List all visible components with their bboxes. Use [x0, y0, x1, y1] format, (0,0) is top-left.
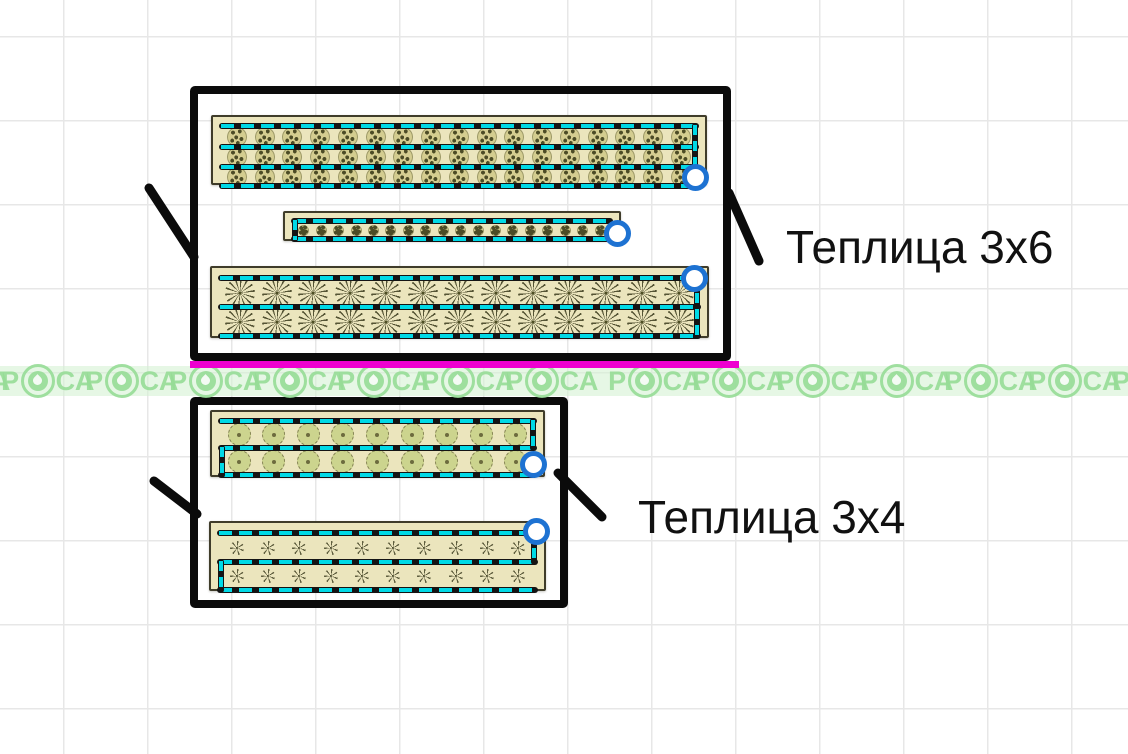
watermark-logo-unit: РСА	[6, 364, 90, 398]
drip-irrigation-line	[219, 144, 699, 150]
plant-symbol	[403, 225, 414, 236]
water-drop-logo-inner	[196, 371, 216, 391]
water-drop-logo-icon	[628, 364, 662, 398]
water-drop-icon	[199, 374, 212, 387]
plant-symbol	[366, 450, 389, 473]
drip-irrigation-line	[218, 304, 701, 310]
plant-symbol	[560, 225, 571, 236]
watermark-letter-r: Р	[169, 366, 188, 397]
water-drop-logo-inner	[112, 371, 132, 391]
watermark-logo-unit: РСА	[510, 364, 594, 398]
drip-line-handle[interactable]	[604, 220, 631, 247]
plant-symbol	[435, 450, 458, 473]
watermark-logo-unit: РСА	[1033, 364, 1117, 398]
drip-line-handle[interactable]	[523, 518, 550, 545]
plant-symbol	[355, 541, 369, 555]
drip-irrigation-line	[217, 530, 538, 536]
water-drop-icon	[974, 374, 987, 387]
water-drop-icon	[1058, 374, 1071, 387]
plant-symbol	[518, 307, 548, 337]
watermark-logo-unit: РСА	[426, 364, 510, 398]
watermark-logo-unit: РСА	[342, 364, 426, 398]
garden-bed[interactable]	[210, 410, 545, 477]
drip-irrigation-line	[217, 559, 538, 565]
plant-row	[295, 225, 609, 236]
plant-symbol	[324, 541, 338, 555]
water-drop-logo-inner	[887, 371, 907, 391]
watermark-strip: РСАРСАРСАРСАРСАРСАРСА	[613, 364, 1128, 398]
watermark-letter-r: Р	[776, 366, 795, 397]
water-drop-logo-inner	[1055, 371, 1075, 391]
watermark-letter-r: Р	[337, 366, 356, 397]
drip-irrigation-connector	[530, 418, 536, 451]
plant-symbol	[335, 307, 365, 337]
plant-symbol	[480, 569, 494, 583]
plant-symbol	[591, 278, 621, 308]
water-drop-icon	[535, 374, 548, 387]
watermark-logo-unit: РСА	[613, 364, 697, 398]
plant-symbol	[577, 225, 588, 236]
water-drop-logo-icon	[525, 364, 559, 398]
water-drop-icon	[806, 374, 819, 387]
plant-symbol	[420, 225, 431, 236]
plant-symbol	[481, 307, 511, 337]
plant-symbol	[225, 278, 255, 308]
watermark-letter-r: Р	[860, 366, 879, 397]
drip-irrigation-line	[291, 236, 613, 242]
water-drop-logo-inner	[803, 371, 823, 391]
water-drop-icon	[638, 374, 651, 387]
water-drop-logo-icon	[796, 364, 830, 398]
plant-row	[221, 541, 534, 555]
watermark-logo-unit: РСА	[697, 364, 781, 398]
plant-symbol	[435, 423, 458, 446]
plant-symbol	[262, 450, 285, 473]
drip-irrigation-connector	[218, 559, 224, 593]
drip-irrigation-line	[291, 218, 613, 224]
plant-symbol	[511, 541, 525, 555]
plant-symbol	[408, 307, 438, 337]
drip-line-handle[interactable]	[520, 451, 547, 478]
drip-irrigation-connector	[219, 445, 225, 478]
plant-symbol	[417, 541, 431, 555]
plant-symbol	[627, 278, 657, 308]
plant-symbol	[664, 307, 694, 337]
plant-symbol	[449, 541, 463, 555]
plant-symbol	[228, 450, 251, 473]
plant-symbol	[554, 307, 584, 337]
plant-symbol	[292, 569, 306, 583]
plant-symbol	[417, 569, 431, 583]
plant-symbol	[230, 569, 244, 583]
watermark-letter-r: Р	[253, 366, 272, 397]
water-drop-logo-icon	[1048, 364, 1082, 398]
watermark-letter-r: Р	[85, 366, 104, 397]
water-drop-logo-icon	[712, 364, 746, 398]
plant-symbol	[331, 450, 354, 473]
garden-plan-canvas[interactable]: РСАРСАРСАРСАРСАРСАРСАРСАРСАРСАРСАРСАРСАР…	[0, 0, 1128, 754]
plant-symbol	[228, 423, 251, 446]
plant-symbol	[298, 278, 328, 308]
plant-symbol	[297, 450, 320, 473]
plant-symbol	[504, 423, 527, 446]
plant-symbol	[261, 569, 275, 583]
plant-symbol	[408, 278, 438, 308]
plant-symbol	[401, 423, 424, 446]
plant-symbol	[473, 225, 484, 236]
garden-bed[interactable]	[283, 211, 621, 241]
plant-symbol	[371, 307, 401, 337]
drip-irrigation-line	[217, 587, 538, 593]
water-drop-logo-inner	[532, 371, 552, 391]
plant-symbol	[298, 307, 328, 337]
plant-symbol	[316, 225, 327, 236]
water-drop-icon	[890, 374, 903, 387]
plant-symbol	[542, 225, 553, 236]
water-drop-logo-inner	[719, 371, 739, 391]
water-drop-logo-inner	[280, 371, 300, 391]
water-drop-logo-icon	[880, 364, 914, 398]
water-drop-logo-inner	[635, 371, 655, 391]
plant-symbol	[591, 307, 621, 337]
watermark-logo-unit: РСА	[781, 364, 865, 398]
plant-symbol	[368, 225, 379, 236]
water-drop-logo-icon	[441, 364, 475, 398]
watermark-logo-unit: РСА	[258, 364, 342, 398]
watermark-letter-r: Р	[1028, 366, 1047, 397]
watermark-letter-r: Р	[1, 366, 20, 397]
watermark-letter-r: Р	[421, 366, 440, 397]
plant-symbol	[470, 450, 493, 473]
plant-symbol	[455, 225, 466, 236]
plant-row	[222, 307, 697, 337]
watermark-logo-unit: РСА	[865, 364, 949, 398]
plant-symbol	[385, 225, 396, 236]
plant-symbol	[261, 541, 275, 555]
garden-bed[interactable]	[209, 521, 546, 591]
water-drop-icon	[722, 374, 735, 387]
plant-symbol	[335, 278, 365, 308]
plant-symbol	[297, 423, 320, 446]
water-drop-icon	[115, 374, 128, 387]
plant-symbol	[355, 569, 369, 583]
plant-symbol	[386, 569, 400, 583]
plant-symbol	[525, 225, 536, 236]
plant-symbol	[230, 541, 244, 555]
plant-symbol	[449, 569, 463, 583]
watermark-letter-r: Р	[505, 366, 524, 397]
water-drop-icon	[31, 374, 44, 387]
plant-row	[222, 450, 533, 473]
drip-irrigation-connector	[292, 218, 298, 242]
drip-irrigation-line	[218, 275, 701, 281]
plant-symbol	[386, 541, 400, 555]
plant-symbol	[470, 423, 493, 446]
plant-symbol	[481, 278, 511, 308]
water-drop-logo-icon	[105, 364, 139, 398]
plant-symbol	[444, 307, 474, 337]
water-drop-logo-inner	[364, 371, 384, 391]
water-drop-icon	[283, 374, 296, 387]
watermark-letter-r: Р	[608, 366, 627, 397]
plant-symbol	[371, 278, 401, 308]
plant-symbol	[262, 307, 292, 337]
drip-irrigation-line	[219, 164, 699, 170]
watermark-letters-ca: СА	[560, 366, 599, 397]
water-drop-logo-icon	[189, 364, 223, 398]
plant-symbol	[480, 541, 494, 555]
garden-bed[interactable]	[211, 115, 707, 185]
plant-row	[222, 423, 533, 446]
plant-symbol	[331, 423, 354, 446]
plant-symbol	[333, 225, 344, 236]
water-drop-logo-icon	[21, 364, 55, 398]
plant-symbol	[554, 278, 584, 308]
plant-symbol	[438, 225, 449, 236]
plant-symbol	[351, 225, 362, 236]
drip-irrigation-line	[218, 472, 537, 478]
plant-symbol	[518, 278, 548, 308]
drip-irrigation-line	[218, 418, 537, 424]
plant-symbol	[507, 225, 518, 236]
water-drop-logo-inner	[971, 371, 991, 391]
water-drop-logo-icon	[273, 364, 307, 398]
water-drop-icon	[367, 374, 380, 387]
drip-irrigation-line	[219, 123, 699, 129]
plant-row	[221, 569, 534, 583]
plant-symbol	[225, 307, 255, 337]
watermark-logo-unit: РСА	[1117, 364, 1128, 398]
watermark-logo-unit: РСА	[949, 364, 1033, 398]
plant-symbol	[490, 225, 501, 236]
watermark-strip: РСАРСАРСАРСАРСАРСАРСАРСА	[0, 364, 594, 398]
water-drop-logo-inner	[448, 371, 468, 391]
plant-symbol	[511, 569, 525, 583]
plant-symbol	[401, 450, 424, 473]
plant-row	[222, 278, 697, 308]
plant-symbol	[324, 569, 338, 583]
watermark-logo-unit: РСА	[90, 364, 174, 398]
drip-irrigation-line	[218, 445, 537, 451]
selection-accent-line	[190, 361, 739, 368]
plant-symbol	[627, 307, 657, 337]
drip-line-handle[interactable]	[682, 164, 709, 191]
plant-symbol	[366, 423, 389, 446]
plant-symbol	[444, 278, 474, 308]
watermark-letter-r: Р	[692, 366, 711, 397]
plant-symbol	[298, 225, 309, 236]
drip-irrigation-line	[219, 183, 699, 189]
plant-symbol	[262, 278, 292, 308]
greenhouse-label-3x4[interactable]: Теплица 3x4	[638, 492, 905, 544]
water-drop-logo-icon	[357, 364, 391, 398]
plant-symbol	[262, 423, 285, 446]
water-drop-logo-inner	[28, 371, 48, 391]
watermark-logo-unit: РСА	[174, 364, 258, 398]
drip-irrigation-line	[218, 333, 701, 339]
water-drop-icon	[451, 374, 464, 387]
water-drop-logo-icon	[964, 364, 998, 398]
drip-line-handle[interactable]	[681, 265, 708, 292]
watermark-letter-r: Р	[944, 366, 963, 397]
watermark-band: РСАРСАРСАРСАРСАРСАРСАРСАРСАРСАРСАРСАРСАР…	[0, 366, 1128, 396]
watermark-letter-r: Р	[1112, 366, 1128, 397]
plant-symbol	[292, 541, 306, 555]
garden-bed[interactable]	[210, 266, 709, 338]
greenhouse-label-3x6[interactable]: Теплица 3x6	[786, 222, 1053, 274]
